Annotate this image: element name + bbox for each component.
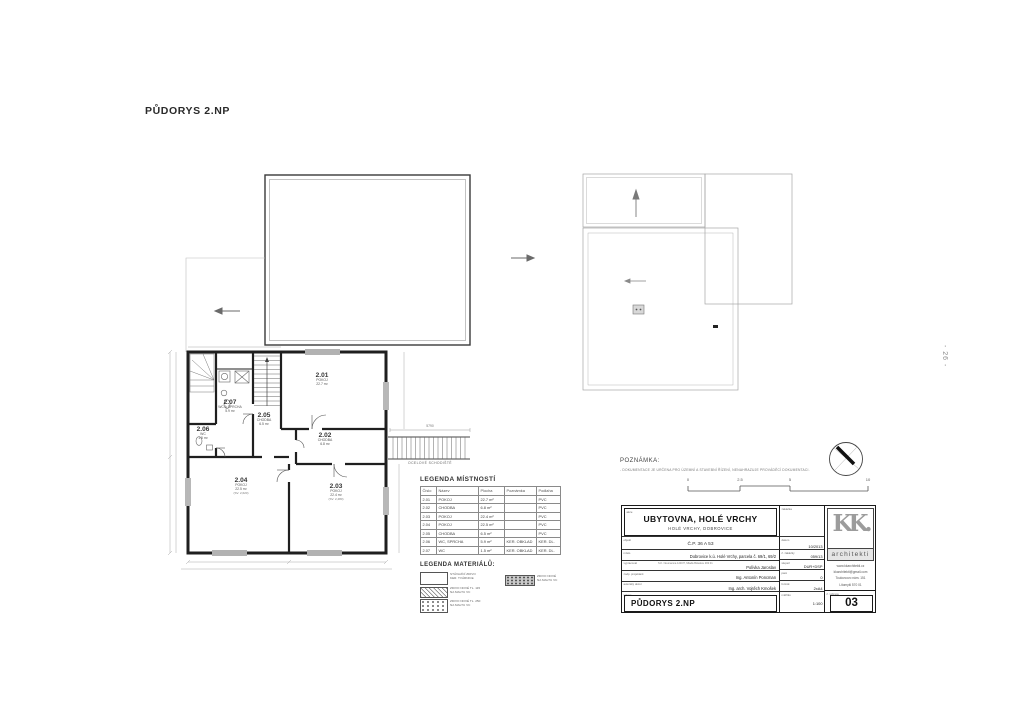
note-text: - DOKUMENTACE JE URČENA PRO ÚZEMNÍ A STA… xyxy=(620,468,890,472)
logo-name: architekti xyxy=(828,548,873,560)
scalebar-label: 10 xyxy=(862,477,874,482)
table-row: 2.07WC1.5 m²KER. OBKLADKER. DL. xyxy=(421,546,561,555)
material-caption: ZDIVO NOVÉ TL. 115NA MALTU VC xyxy=(450,586,510,594)
scale-bar xyxy=(688,486,868,491)
legend-rooms-title: LEGENDA MÍSTNOSTÍ xyxy=(420,476,496,483)
page-number: - 26 - xyxy=(941,345,948,367)
project-title: UBYTOVNA, HOLÉ VRCHY xyxy=(625,514,776,524)
floor-plan-walls xyxy=(188,352,386,553)
meta-meritko: měřítko 1:100 xyxy=(779,591,825,613)
legend-materials-title: LEGENDA MATERIÁLŮ: xyxy=(420,562,495,568)
winder-staircase xyxy=(190,354,214,392)
room-label-2-05: 2.05 CHODBA 6.5 m² xyxy=(246,412,282,427)
room-label-2-02: 2.02 CHODBA 6.8 m² xyxy=(300,432,350,447)
roof-mark xyxy=(713,325,718,328)
logo-addr2: Litomyšl 570 01 xyxy=(825,582,876,588)
material-caption: ZDIVO NOVÉNA MALTU VC xyxy=(537,574,597,582)
table-row: 2.03POKOJ22.4 m²PVC xyxy=(421,512,561,521)
room-label-2-07: 2.07 WC A SPRCHA 5.9 m² xyxy=(206,399,254,414)
upper-hall-outline xyxy=(265,175,470,345)
table-row: 2.02CHODBA6.8 m²PVC xyxy=(421,504,561,513)
room-label-2-04: 2.04 POKOJ 22.5 m² (SV. 2,620) xyxy=(216,477,266,496)
drawing-title: PŮDORYS 2.NP xyxy=(631,599,695,608)
left-arrow-icon xyxy=(215,308,240,314)
drawing-number-box: č. výkresu 03 xyxy=(825,590,876,613)
scalebar-label: 2.5 xyxy=(734,477,746,482)
material-caption: STÁVAJÍCÍ ZDIVOKER. TVÁRNICE xyxy=(450,572,510,580)
central-staircase xyxy=(254,356,280,406)
room-label-2-01: 2.01 POKOJ 22.7 m² xyxy=(297,372,347,387)
exterior-staircase xyxy=(388,428,470,459)
scalebar-label: 5 xyxy=(786,477,794,482)
material-swatch-new-250 xyxy=(420,599,448,613)
title-block: akce UBYTOVNA, HOLÉ VRCHY HOLÉ VRCHY, DO… xyxy=(621,505,876,613)
kk-architekti-logo: KK. architekti xyxy=(827,508,874,561)
material-swatch-new xyxy=(505,575,535,586)
right-arrow-icon xyxy=(511,255,534,261)
object-value: Č.P. 36 A 53 xyxy=(622,542,779,547)
logo-mark: KK. xyxy=(828,510,873,537)
material-swatch-new-115 xyxy=(420,587,448,598)
contact-block: www.kkarchitekti.cz kkarchitekti@gmail.c… xyxy=(825,563,876,588)
stair-dimension: 5790 xyxy=(410,424,450,428)
material-caption: ZDIVO NOVÉ TL. 250NA MALTU VC xyxy=(450,599,510,607)
note-title: POZNÁMKA: xyxy=(620,458,660,464)
roof-left-arrow-icon xyxy=(625,279,646,283)
roof-outline xyxy=(583,174,792,390)
object-row: objekt Č.P. 36 A 53 xyxy=(622,536,779,550)
chimney xyxy=(633,305,644,314)
table-row: 2.01POKOJ22.7 m²PVC xyxy=(421,495,561,504)
room-label-2-03: 2.03 POKOJ 22.4 m² (SV. 2,480) xyxy=(311,483,361,502)
project-subtitle: HOLÉ VRCHY, DOBROVICE xyxy=(625,526,776,531)
drawing-number: 03 xyxy=(830,595,873,612)
scalebar-label: 0 xyxy=(684,477,692,482)
table-row: 2.05CHODBA6.5 m²PVC xyxy=(421,529,561,538)
project-title-box: akce UBYTOVNA, HOLÉ VRCHY HOLÉ VRCHY, DO… xyxy=(624,508,777,536)
material-swatch-existing xyxy=(420,572,448,585)
table-row: 2.06WC, SPRCHA5.9 m²KER. OBKLADKER. DL. xyxy=(421,538,561,547)
stair-caption: OCELOVÉ SCHODIŠTĚ xyxy=(395,461,465,465)
logo-column: KK. architekti www.kkarchitekti.cz kkarc… xyxy=(824,506,876,612)
meta-datum: datum 10/2013 xyxy=(779,536,825,550)
akce-label: akce xyxy=(627,510,633,514)
page-title: PŮDORYS 2.NP xyxy=(145,105,230,117)
table-header-row: Číslo Název Plocha Poznámka Podlaha xyxy=(421,487,561,496)
legend-rooms-table: Číslo Název Plocha Poznámka Podlaha 2.01… xyxy=(420,486,561,555)
meta-zakazka: zakázka xyxy=(779,506,825,536)
drawing-row: výkres PŮDORYS 2.NP xyxy=(622,591,779,613)
drawing-sheet: PŮDORYS 2.NP - 26 - 2.01 POKOJ 22.7 m² 2… xyxy=(0,0,1024,717)
left-roof-outline xyxy=(186,258,265,352)
drawing-title-box: PŮDORYS 2.NP xyxy=(624,595,777,612)
roof-up-arrow-icon xyxy=(633,190,639,217)
table-row: 2.04POKOJ22.5 m²PVC xyxy=(421,521,561,530)
room-label-2-06: 2.06 WC 1.5 m² xyxy=(190,426,216,441)
